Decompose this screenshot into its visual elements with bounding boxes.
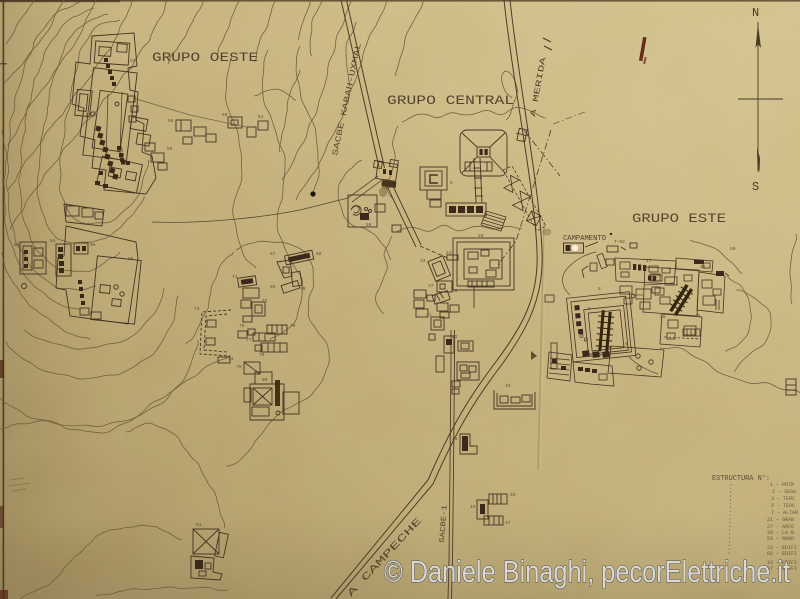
svg-text:N: N bbox=[752, 6, 759, 20]
svg-text:37: 37 bbox=[428, 283, 434, 289]
svg-text:80: 80 bbox=[262, 377, 268, 383]
svg-text:53: 53 bbox=[130, 58, 136, 64]
svg-text:21: 21 bbox=[446, 250, 452, 256]
svg-text:S: S bbox=[752, 180, 759, 194]
svg-text:71: 71 bbox=[232, 274, 238, 280]
svg-text:66: 66 bbox=[128, 256, 134, 262]
svg-text:68: 68 bbox=[316, 251, 322, 257]
svg-text:57: 57 bbox=[86, 112, 92, 118]
svg-text:64: 64 bbox=[50, 238, 56, 244]
svg-text:44: 44 bbox=[452, 436, 458, 442]
svg-text:75: 75 bbox=[239, 323, 245, 329]
svg-text:21 – GRAN: 21 – GRAN bbox=[767, 517, 794, 523]
svg-text:81: 81 bbox=[196, 522, 202, 528]
svg-text:72: 72 bbox=[262, 298, 268, 304]
svg-text:63: 63 bbox=[14, 242, 20, 248]
svg-text:T-02: T-02 bbox=[614, 239, 625, 245]
svg-text:7 – ALTAR: 7 – ALTAR bbox=[771, 510, 798, 516]
svg-text:51: 51 bbox=[118, 148, 124, 154]
svg-text:76: 76 bbox=[290, 323, 296, 329]
svg-text:ESTRUCTURA N°:: ESTRUCTURA N°: bbox=[712, 474, 770, 483]
svg-text:42: 42 bbox=[452, 334, 458, 340]
svg-text:1 – PRIM: 1 – PRIM bbox=[770, 482, 794, 488]
svg-text:77: 77 bbox=[246, 337, 252, 343]
svg-text:28: 28 bbox=[660, 314, 666, 320]
svg-text:67: 67 bbox=[270, 251, 276, 257]
svg-text:78: 78 bbox=[259, 352, 265, 358]
svg-text:69: 69 bbox=[270, 284, 276, 290]
svg-text:5 – TEOC: 5 – TEOC bbox=[771, 503, 795, 509]
svg-text:65: 65 bbox=[90, 242, 96, 248]
svg-text:59: 59 bbox=[168, 118, 174, 124]
svg-text:70: 70 bbox=[300, 286, 306, 292]
svg-text:GRUPO OESTE: GRUPO OESTE bbox=[152, 50, 258, 65]
svg-text:59 – MANO: 59 – MANO bbox=[767, 536, 794, 542]
svg-text:© Daniele Binaghi, pecorElettr: © Daniele Binaghi, pecorElettriche.it bbox=[384, 554, 790, 589]
svg-text:60: 60 bbox=[222, 112, 228, 118]
svg-text:45: 45 bbox=[510, 492, 516, 498]
svg-text:20: 20 bbox=[478, 233, 484, 239]
svg-text:58: 58 bbox=[167, 146, 173, 152]
svg-text:46: 46 bbox=[470, 504, 476, 510]
svg-text:73: 73 bbox=[194, 306, 200, 312]
svg-text:50: 50 bbox=[730, 246, 736, 252]
svg-text:8: 8 bbox=[598, 286, 601, 292]
svg-text:17: 17 bbox=[646, 258, 652, 264]
svg-text:39: 39 bbox=[452, 288, 458, 294]
svg-text:74: 74 bbox=[228, 356, 234, 362]
svg-text:GRUPO CENTRAL: GRUPO CENTRAL bbox=[387, 93, 514, 108]
svg-text:2 – SEGU: 2 – SEGU bbox=[772, 489, 796, 495]
svg-text:GRUPO ESTE: GRUPO ESTE bbox=[632, 211, 726, 226]
svg-text:56: 56 bbox=[366, 222, 372, 228]
svg-text:43: 43 bbox=[505, 383, 511, 389]
svg-text:6: 6 bbox=[450, 180, 453, 186]
svg-text:CAMPAMENTO: CAMPAMENTO bbox=[563, 235, 606, 243]
svg-text:33: 33 bbox=[420, 258, 426, 264]
svg-text:47: 47 bbox=[505, 520, 511, 526]
svg-text:61: 61 bbox=[258, 114, 264, 120]
svg-text:3 – TERC: 3 – TERC bbox=[771, 496, 795, 502]
svg-text:41: 41 bbox=[426, 312, 432, 318]
svg-text:79: 79 bbox=[236, 364, 242, 370]
